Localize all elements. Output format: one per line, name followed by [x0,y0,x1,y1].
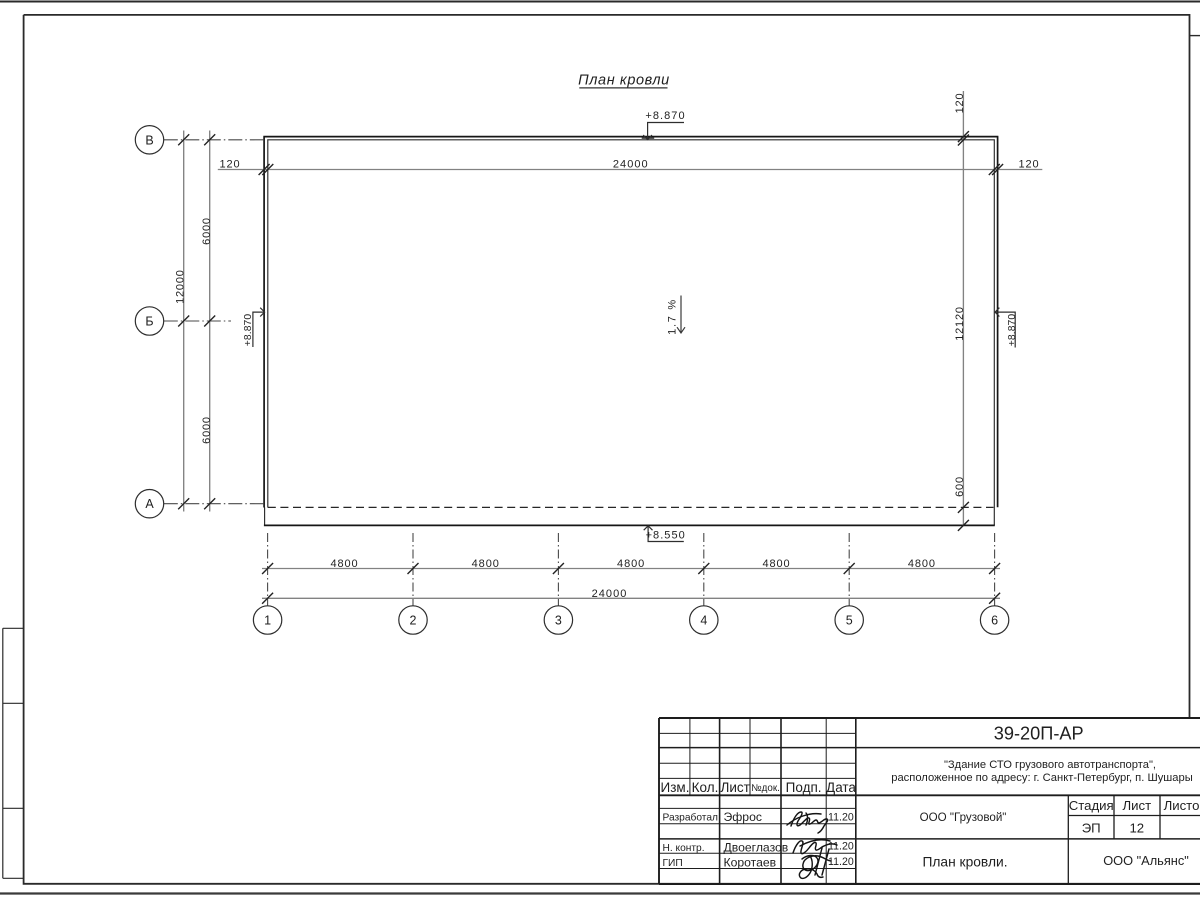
svg-text:4800: 4800 [908,558,936,570]
svg-text:600: 600 [954,476,966,497]
svg-text:+8.550: +8.550 [646,530,686,542]
svg-text:План кровли.: План кровли. [922,854,1007,869]
svg-text:Лист: Лист [1122,798,1151,813]
svg-text:Листов: Листов [1164,798,1200,813]
svg-text:24000: 24000 [592,588,628,600]
svg-text:12120: 12120 [954,306,966,341]
svg-text:+8.870: +8.870 [1007,314,1018,347]
svg-text:6: 6 [991,614,998,628]
svg-text:24000: 24000 [613,159,649,171]
svg-text:4800: 4800 [472,558,500,570]
svg-text:1: 1 [264,614,271,628]
svg-text:Б: Б [145,315,153,329]
svg-text:11.20: 11.20 [828,856,854,868]
svg-text:4800: 4800 [617,558,645,570]
svg-text:120: 120 [954,93,966,114]
svg-text:ЭП: ЭП [1082,821,1101,836]
svg-text:Разработал: Разработал [663,811,719,823]
svg-text:12000: 12000 [174,269,186,304]
svg-text:2: 2 [410,614,417,628]
svg-text:№док.: №док. [751,783,780,794]
svg-text:Лист: Лист [721,780,750,795]
svg-text:ГИП: ГИП [663,858,683,869]
svg-text:39-20П-АР: 39-20П-АР [994,724,1084,744]
svg-text:11.20: 11.20 [828,840,854,852]
svg-text:120: 120 [1018,158,1039,170]
svg-text:А: А [145,497,154,511]
svg-text:Стадия: Стадия [1069,798,1114,813]
svg-text:Изм.: Изм. [661,780,690,795]
svg-text:Н. контр.: Н. контр. [663,843,705,854]
svg-text:3: 3 [555,614,562,628]
svg-text:Кол.: Кол. [692,780,719,795]
svg-text:120: 120 [219,158,240,170]
svg-text:"Здание СТО грузового автотран: "Здание СТО грузового автотранспорта", [944,759,1156,771]
svg-text:Эфрос: Эфрос [724,810,762,824]
svg-text:расположенное по адресу: г. Са: расположенное по адресу: г. Санкт-Петерб… [891,772,1193,784]
svg-text:Коротаев: Коротаев [724,856,777,870]
svg-text:+8.870: +8.870 [243,314,254,347]
svg-text:6000: 6000 [201,416,213,444]
svg-text:5: 5 [846,614,853,628]
svg-text:11.20: 11.20 [828,812,854,824]
svg-text:Двоеглазов: Двоеглазов [724,840,789,854]
svg-text:Подп.: Подп. [786,780,822,795]
svg-text:1.7 %: 1.7 % [666,298,678,335]
svg-text:+8.870: +8.870 [645,110,685,122]
svg-text:4: 4 [700,614,707,628]
svg-text:ООО "Грузовой": ООО "Грузовой" [920,811,1007,824]
svg-text:ООО "Альянс": ООО "Альянс" [1103,853,1189,868]
svg-text:В: В [145,133,153,147]
svg-text:4800: 4800 [330,558,358,570]
svg-text:6000: 6000 [201,217,213,245]
svg-text:План кровли: План кровли [578,73,670,89]
svg-text:12: 12 [1129,821,1144,836]
svg-text:4800: 4800 [762,558,790,570]
svg-text:Дата: Дата [826,780,856,795]
